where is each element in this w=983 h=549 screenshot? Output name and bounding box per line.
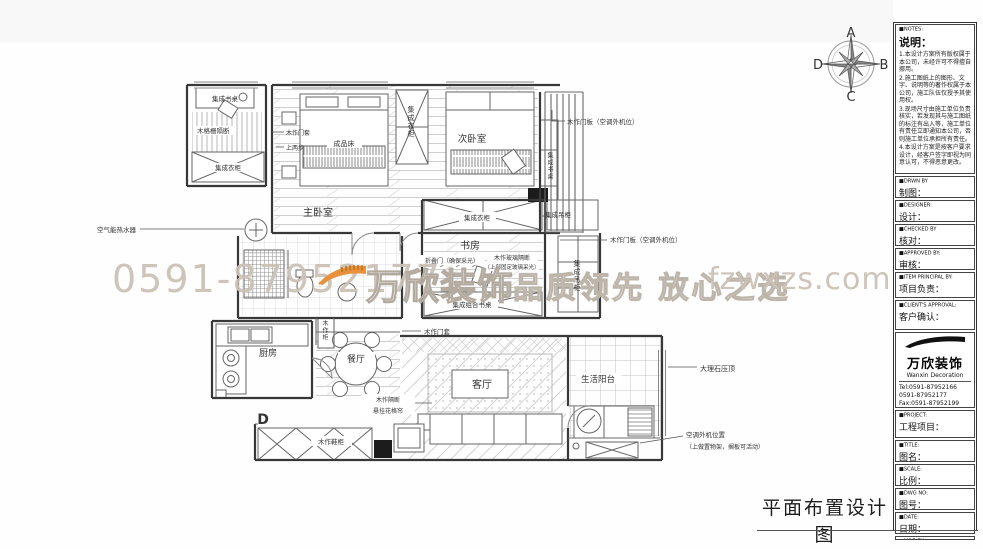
label-wood-partition: 木作隔断 (376, 396, 400, 404)
label-ac-outdoor-note: （上做置物架，搁板可活动） (686, 443, 764, 451)
label-kitchen: 厨房 (259, 347, 277, 359)
company-brand-en: Wanxin Decoration (899, 372, 971, 379)
company-tel-1: Tel:0591-87952166 (899, 384, 971, 392)
field-title: ■TITLE: 图名： (895, 440, 975, 462)
label-ac-outdoor: 空调外机位置 (686, 430, 726, 439)
label-wardrobe-study: 集成衣柜 (464, 213, 491, 222)
notes-item: 1.本设计方案所有版权属于本公司，未经许可不得擅自挪用。 (899, 51, 971, 74)
label-wood-cabinet-vertical: 木作柜 (321, 320, 327, 341)
field-en: ■DESIGNER: (899, 202, 960, 208)
drawing-title: 平面布置设计图 (752, 493, 898, 549)
field-en: ■SCALE: (899, 466, 960, 472)
label-folding-door: 折叠门（确保采光） (425, 257, 479, 265)
label-two-steps: 上两步 (286, 144, 304, 152)
company-logo-swoosh-icon (903, 335, 967, 349)
label-balcony: 生活阳台 (581, 374, 615, 385)
label-marble-coping: 大理石压顶 (700, 364, 735, 373)
field-scale: ■SCALE: 比例： (895, 464, 975, 486)
label-combo-desk: 集成组合书桌 (453, 300, 493, 309)
label-glass-partition: 木作玻璃隔断 (494, 254, 530, 262)
compass-south-label: C (846, 90, 855, 105)
field-cn: 工程项目： (899, 420, 971, 433)
field-cn: 核对： (899, 234, 971, 246)
field-project: ■PROJECT: 工程项目： (895, 410, 975, 438)
bottom-frame-line (757, 530, 978, 531)
field-en: ■TITLE: (899, 442, 960, 448)
label-desk-annex: 集成书桌 (212, 94, 239, 103)
compass-east-label: B (880, 58, 889, 73)
field-cn: 设计： (899, 210, 971, 222)
label-door-casing-1: 木作门套 (286, 129, 310, 137)
field-client-approval: ■CLIENT'S APPROVAL: 客户确认： (895, 300, 975, 330)
label-dining: 餐厅 (347, 353, 365, 365)
field-cn: 比例： (899, 474, 971, 486)
label-wardrobe-column-vertical: 集成衣柜 (407, 106, 414, 138)
company-brand: 万欣装饰 (899, 353, 971, 372)
label-study: 书房 (460, 239, 480, 252)
label-living-room: 客厅 (472, 378, 492, 391)
field-designer: ■DESIGNER: 设计： (895, 200, 975, 222)
field-en: ■DATE: (899, 514, 960, 520)
label-hanging-cabinet: 集成吊柜 (545, 210, 572, 219)
notes-en-label: ■NOTES: (899, 26, 960, 32)
field-en: ■DRWN BY (899, 178, 960, 184)
title-block: ■NOTES: 说明： 1.本设计方案所有版权属于本公司，未经许可不得擅自挪用。… (893, 22, 977, 531)
field-checked-by: ■CHECKED BY 核对： (895, 224, 975, 246)
field-item-principal: ■ITEM PRINCIPAL BY: 项目负责： (895, 272, 975, 298)
label-wardrobe-annex: 集成衣柜 (215, 163, 242, 172)
titleblock-notes: ■NOTES: 说明： 1.本设计方案所有版权属于本公司，未经许可不得擅自挪用。… (895, 24, 975, 174)
label-water-heater: 空气能热水器 (97, 225, 137, 234)
label-shoe-cabinet: 木作鞋柜 (318, 437, 345, 446)
company-logo-block: 万欣装饰 Wanxin Decoration Tel:0591-87952166… (895, 332, 975, 408)
field-approved-by: ■APPROVED BY: 审核： (895, 248, 975, 270)
label-hanging-lattice: 悬挂花格帘 (373, 407, 403, 415)
label-hanging-cabinet-vertical: 集成吊柜 (573, 260, 580, 292)
watermark-band (0, 0, 893, 42)
field-modify: ■MODIFY: 修改： (895, 536, 975, 540)
field-cn: 图名： (899, 450, 971, 462)
field-cn: 日期： (899, 522, 971, 534)
notes-item: 4.本设计方案是按客户要求设计，经客户签字即视为同意认可，不得恶意更改。 (899, 144, 971, 167)
drawing-sheet: 集成书桌 木格栅隔断 集成衣柜 空气能热水器 木作门套 上两步 成品床 主卧室 … (0, 0, 983, 549)
company-tel-2: 0591-87952177 (899, 392, 971, 400)
company-web: Web:WWW.fzwxzs.com (899, 407, 971, 408)
field-cn: 图号： (899, 498, 971, 510)
notes-title: 说明： (899, 34, 971, 50)
label-door-panel-ac-1: 木作门板（空调外机位） (567, 117, 639, 126)
label-bed: 成品床 (334, 139, 355, 148)
field-en: ■DWG NO: (899, 490, 960, 496)
label-door-panel-ac-2: 木作门板（空调外机位） (610, 235, 682, 244)
notes-item: 2.施工图纸上的图形、文字、说明等的著作权属于本公司，施工队伍仅授予其使用权。 (899, 75, 971, 105)
label-wood-grille: 木格栅隔断 (197, 126, 230, 135)
field-cn: 客户确认： (899, 310, 971, 323)
label-glass-partition-note: （上部固定玻璃采光） (484, 263, 539, 271)
label-master-bedroom: 主卧室 (303, 206, 333, 219)
field-cn: 制图： (899, 186, 971, 198)
field-cn: 审核： (899, 258, 971, 270)
floor-plan: 集成书桌 木格栅隔断 集成衣柜 空气能热水器 木作门套 上两步 成品床 主卧室 … (0, 0, 983, 549)
label-marker-d: D (257, 412, 269, 428)
company-fax: Fax:0591-87952199 (899, 400, 971, 408)
label-second-bedroom: 次卧室 (458, 133, 487, 145)
field-en: ■MODIFY: (899, 538, 960, 540)
field-en: ■CLIENT'S APPROVAL: (899, 302, 960, 308)
field-en: ■APPROVED BY: (899, 250, 960, 256)
notes-item: 3.现场尺寸由施工单位负责核实，若发现其与施工图纸的标注有出入等，施工单位有责任… (899, 106, 971, 144)
label-desk-strip-vertical: 集成书桌 (546, 152, 552, 180)
label-door-casing-2: 木作门套 (424, 327, 451, 336)
field-drawn-by: ■DRWN BY 制图： (895, 176, 975, 198)
field-en: ■PROJECT: (899, 412, 960, 418)
field-en: ■CHECKED BY (899, 226, 960, 232)
field-dwg-no: ■DWG NO: 图号： (895, 488, 975, 510)
field-cn: 项目负责： (899, 282, 971, 295)
compass-west-label: D (813, 58, 823, 73)
field-en: ■ITEM PRINCIPAL BY: (899, 274, 960, 280)
